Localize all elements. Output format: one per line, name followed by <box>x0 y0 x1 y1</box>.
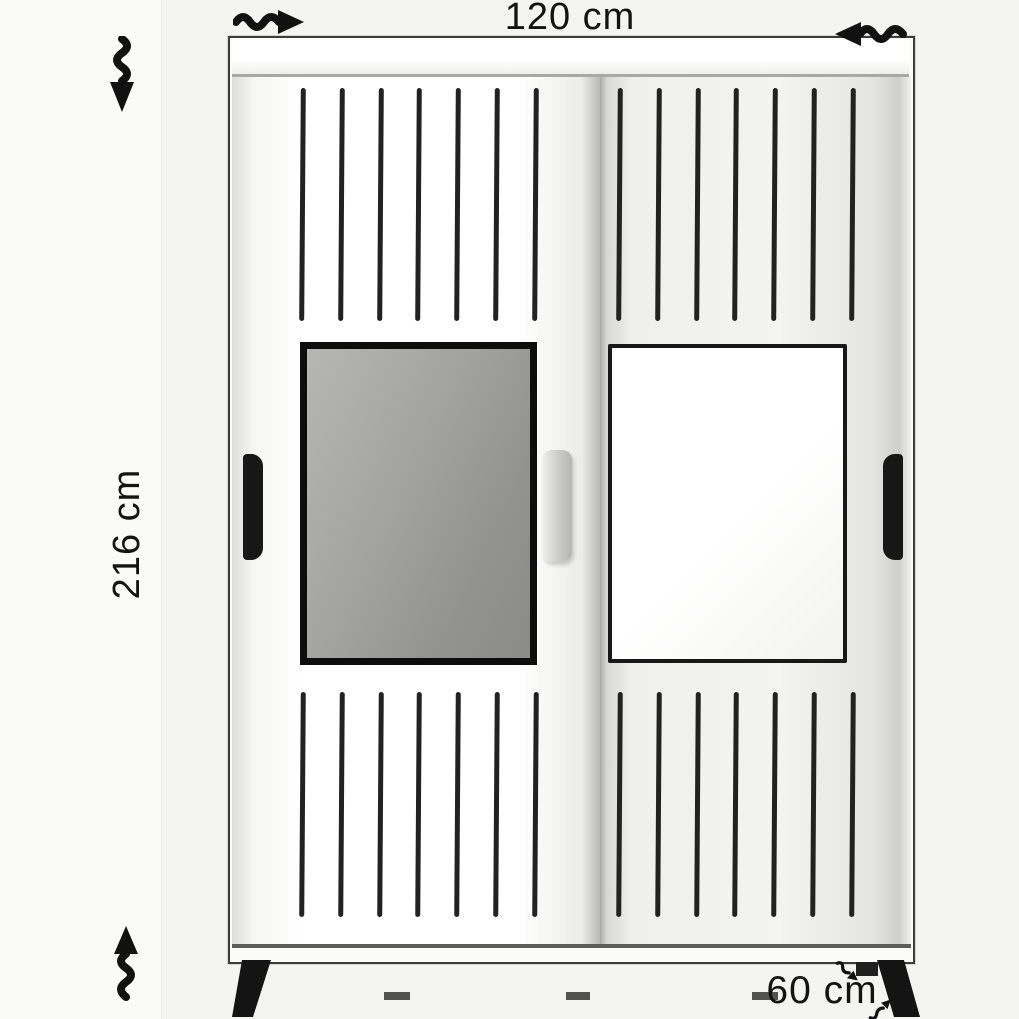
door-slat <box>532 692 539 917</box>
door-slat <box>849 88 856 321</box>
door-slat <box>377 88 384 321</box>
door-slat <box>299 88 306 321</box>
door-slat <box>377 692 384 917</box>
wardrobe-top-rail <box>232 40 909 77</box>
left-door-top-slats <box>300 88 538 321</box>
door-slat <box>493 88 500 321</box>
width-arrow-right-icon <box>233 6 307 38</box>
door-slat <box>655 692 662 917</box>
door-bottom-edge <box>232 944 911 948</box>
right-door-bottom-slats <box>617 692 855 917</box>
door-slat <box>454 88 461 321</box>
width-arrow-left-icon <box>832 18 908 50</box>
door-slat <box>493 692 500 917</box>
wardrobe-plinth <box>373 962 779 992</box>
door-slat <box>338 88 345 321</box>
height-arrow-up-icon <box>110 922 142 1002</box>
plinth-foot <box>384 992 410 1000</box>
door-slat <box>694 692 701 917</box>
door-slat <box>616 692 623 917</box>
right-door-outlined-panel <box>608 344 847 663</box>
depth-arrow-down-icon <box>833 960 861 988</box>
door-slat <box>733 692 740 917</box>
door-slat <box>416 692 423 917</box>
door-slat <box>455 692 462 917</box>
left-door-mirror-panel <box>300 342 537 665</box>
door-slat <box>810 88 817 321</box>
plinth-foot <box>566 992 590 1000</box>
door-slat <box>532 88 539 321</box>
door-slat <box>338 692 345 917</box>
right-door-top-slats <box>617 88 855 321</box>
depth-dimension-label: 60 cm <box>762 970 882 1014</box>
left-door-bottom-slats <box>300 692 538 917</box>
door-slat <box>810 692 817 917</box>
wardrobe-dimension-diagram: 120 cm 216 cm 60 cm <box>0 0 1019 1019</box>
width-dimension-label: 120 cm <box>480 0 660 38</box>
door-slat <box>733 88 740 321</box>
height-arrow-down-icon <box>106 36 138 116</box>
door-slat <box>616 88 623 321</box>
door-slat <box>299 692 306 917</box>
door-slat <box>416 88 423 321</box>
right-door-handle <box>883 454 903 560</box>
height-dimension-label: 216 cm <box>106 449 146 619</box>
wardrobe-left-leg <box>230 960 272 1017</box>
door-slat <box>771 88 778 321</box>
door-slat <box>772 692 779 917</box>
middle-door-handle <box>542 450 572 562</box>
door-slat <box>655 88 662 321</box>
depth-arrow-up-icon <box>866 993 894 1019</box>
left-door-handle <box>243 454 263 560</box>
door-slat <box>849 692 856 917</box>
door-slat <box>694 88 701 321</box>
